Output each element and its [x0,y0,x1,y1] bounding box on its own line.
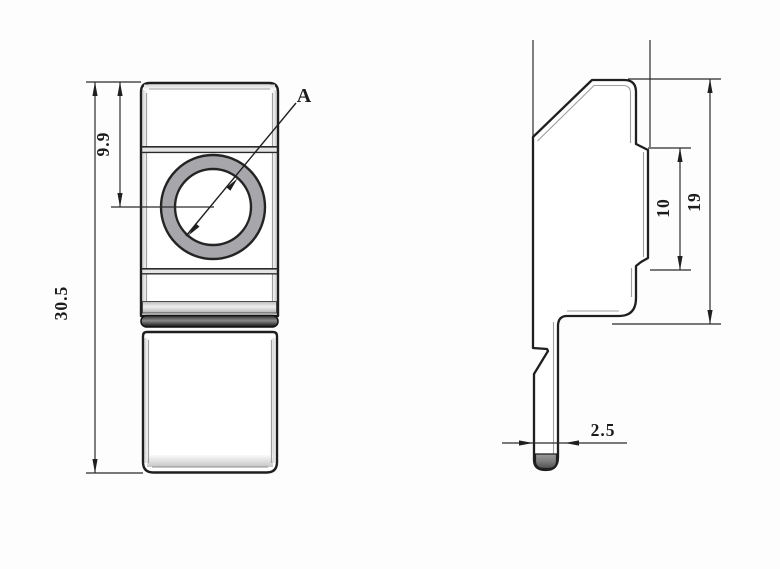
arrowhead-down [677,256,682,270]
front-view: 30.5 9.9 A [51,82,312,473]
arrowhead-up [92,82,97,96]
dim-rib-height-label: 10 [653,198,673,218]
front-head-bottom-band [141,316,278,328]
dim-head-height-label: 19 [684,192,704,212]
arrowhead-up [677,148,682,162]
side-stem-tip-fill [536,454,557,469]
front-divider-lower-fill [143,269,276,274]
dim-stem-thickness: 2.5 [502,420,627,446]
arrowhead-down [707,310,712,324]
front-lower-left-bevel [145,338,151,463]
arrowhead-up [707,79,712,93]
hole-ref-label: A [297,85,312,107]
front-gradient-band [143,302,277,314]
front-lower-bottom-shade [147,455,273,467]
arrowhead-down [92,459,97,473]
front-lower-body-outline [143,332,277,473]
side-view: 19 10 2.5 [502,40,721,470]
part-drawing-svg: 30.5 9.9 A [0,0,780,569]
arrowhead-right [519,440,533,445]
technical-drawing-sheet: 30.5 9.9 A [0,0,780,569]
front-head-top-bevel [144,85,275,91]
dim-stem-thickness-label: 2.5 [591,420,616,440]
dim-overall-height-label: 30.5 [51,286,71,321]
arrowhead-down [117,193,122,207]
dim-hole-offset-label: 9.9 [93,132,113,157]
arrowhead-left [565,440,579,445]
arrowhead-up [117,82,122,96]
